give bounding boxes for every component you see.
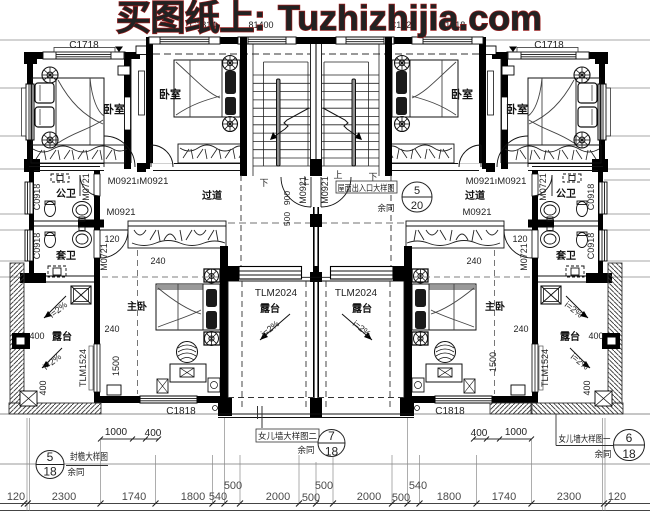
svg-text:M0721: M0721 [99, 243, 109, 271]
svg-text:过道: 过道 [465, 189, 485, 202]
svg-text:C0918: C0918 [586, 184, 596, 211]
svg-text:1800: 1800 [181, 491, 205, 503]
svg-text:主卧: 主卧 [127, 300, 147, 313]
svg-text:C0918: C0918 [32, 184, 42, 211]
svg-text:120: 120 [104, 234, 119, 244]
svg-text:18: 18 [325, 445, 339, 459]
svg-text:1000: 1000 [105, 427, 128, 438]
svg-text:240: 240 [150, 256, 165, 266]
svg-text:露台: 露台 [260, 302, 280, 315]
svg-text:120: 120 [7, 491, 25, 503]
svg-text:卧室: 卧室 [451, 87, 473, 101]
svg-text:400: 400 [145, 428, 162, 439]
svg-text:M0921ıM0921: M0921ıM0921 [466, 176, 527, 187]
svg-text:1500: 1500 [488, 352, 498, 372]
svg-text:余同: 余同 [377, 203, 394, 213]
svg-text:M0921: M0921 [106, 207, 135, 218]
svg-text:M0921: M0921 [462, 207, 491, 218]
svg-text:余同: 余同 [297, 445, 314, 455]
svg-text:下: 下 [259, 178, 268, 188]
svg-text:540: 540 [409, 480, 427, 492]
svg-text:2300: 2300 [557, 491, 581, 503]
svg-text:TLM1524: TLM1524 [540, 349, 550, 387]
svg-text:1000: 1000 [505, 427, 528, 438]
svg-text:18: 18 [43, 465, 57, 479]
svg-text:套卫: 套卫 [55, 249, 76, 262]
svg-text:屋面出入口大样图: 屋面出入口大样图 [338, 183, 395, 193]
svg-text:M0921: M0921 [320, 176, 330, 204]
svg-text:400: 400 [588, 331, 603, 341]
svg-text:女儿墙大样图一: 女儿墙大样图一 [559, 433, 611, 444]
svg-text:上: 上 [300, 176, 309, 186]
svg-text:120: 120 [512, 234, 527, 244]
svg-text:买图纸上:: 买图纸上: [116, 0, 265, 38]
svg-text:6: 6 [626, 431, 633, 445]
svg-text:M0921ıM0921: M0921ıM0921 [108, 176, 169, 187]
svg-text:1740: 1740 [492, 491, 516, 503]
svg-text:主卧: 主卧 [485, 300, 505, 313]
svg-text:C1818: C1818 [166, 406, 196, 417]
svg-text:900: 900 [282, 191, 292, 205]
svg-text:240: 240 [466, 256, 481, 266]
svg-text:TLM2024: TLM2024 [255, 288, 298, 299]
svg-text:TLM1524: TLM1524 [78, 349, 88, 387]
svg-text:C0918: C0918 [586, 233, 596, 260]
svg-text:18: 18 [622, 447, 636, 461]
svg-text:C1718: C1718 [534, 40, 564, 51]
svg-text:M0721: M0721 [538, 173, 548, 201]
svg-text:Tuzhizhijia.com: Tuzhizhijia.com [278, 0, 542, 38]
svg-text:M0721: M0721 [81, 173, 91, 201]
svg-text:500: 500 [224, 480, 242, 492]
svg-text:400: 400 [38, 380, 48, 395]
svg-text:1740: 1740 [122, 491, 146, 503]
svg-text:400: 400 [471, 428, 488, 439]
svg-text:2000: 2000 [266, 491, 290, 503]
svg-text:C0918: C0918 [32, 233, 42, 260]
svg-text:过道: 过道 [202, 189, 222, 202]
svg-text:卧室: 卧室 [506, 102, 528, 116]
svg-text:女儿墙大样图二: 女儿墙大样图二 [258, 431, 317, 441]
svg-text:120: 120 [608, 491, 626, 503]
svg-text:卧室: 卧室 [159, 87, 181, 101]
svg-text:下: 下 [368, 172, 377, 182]
svg-text:公卫: 公卫 [556, 188, 576, 200]
svg-text:露台: 露台 [560, 330, 580, 343]
svg-text:1500: 1500 [111, 356, 121, 376]
svg-text:400: 400 [29, 331, 44, 341]
svg-text:余同: 余同 [67, 467, 84, 477]
svg-text:20: 20 [411, 200, 423, 212]
svg-text:套卫: 套卫 [555, 249, 576, 262]
svg-text:5: 5 [47, 450, 54, 464]
svg-text:余同: 余同 [594, 449, 611, 459]
svg-text:500: 500 [302, 492, 320, 504]
svg-text:1800: 1800 [437, 491, 461, 503]
svg-text:M0721: M0721 [519, 243, 529, 271]
svg-text:C1718: C1718 [69, 40, 99, 51]
svg-text:540: 540 [209, 491, 227, 503]
svg-text:240: 240 [104, 324, 119, 334]
svg-text:5: 5 [414, 185, 420, 197]
svg-text:封檐大样图: 封檐大样图 [70, 451, 108, 463]
svg-text:上: 上 [333, 170, 342, 180]
svg-text:240: 240 [513, 324, 528, 334]
svg-text:500: 500 [392, 492, 410, 504]
svg-text:露台: 露台 [52, 330, 72, 343]
svg-text:2000: 2000 [357, 491, 381, 503]
svg-text:C1818: C1818 [435, 406, 465, 417]
svg-text:卧室: 卧室 [103, 102, 125, 116]
svg-text:公卫: 公卫 [56, 188, 76, 200]
svg-text:TLM2024: TLM2024 [335, 288, 378, 299]
svg-text:500: 500 [282, 212, 292, 226]
svg-text:500: 500 [315, 480, 333, 492]
svg-text:2300: 2300 [52, 491, 76, 503]
svg-text:露台: 露台 [352, 302, 372, 315]
svg-text:7: 7 [328, 429, 335, 443]
svg-text:400: 400 [582, 380, 592, 395]
